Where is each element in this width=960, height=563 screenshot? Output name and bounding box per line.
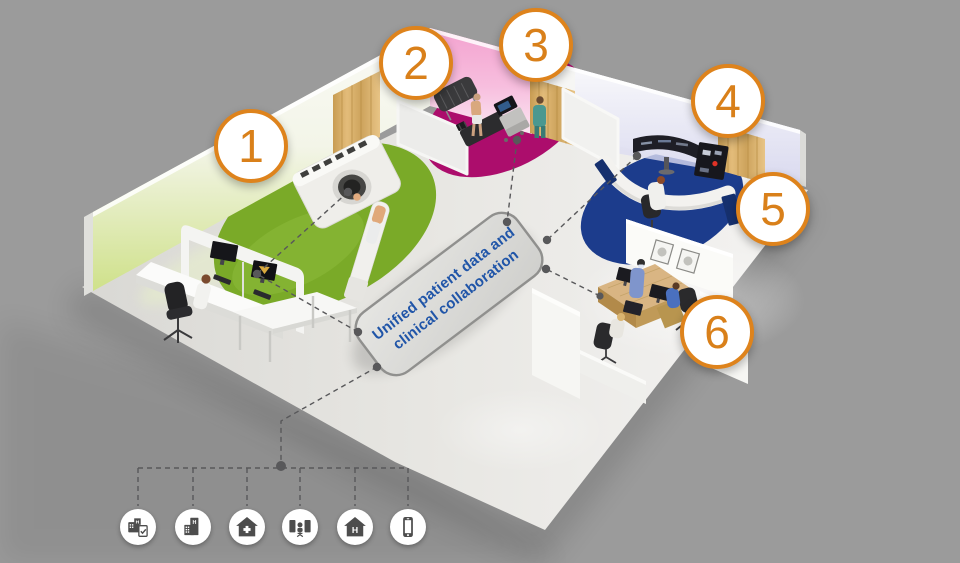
reading-room-glyph (287, 514, 313, 540)
marker-3[interactable]: 3 (499, 8, 573, 82)
hospital-floorplan-diagram: Unified patient data and clinical collab… (0, 0, 960, 563)
marker-6[interactable]: 6 (680, 295, 754, 369)
reading-room-icon[interactable] (282, 509, 318, 545)
home-hospital-icon[interactable]: H (337, 509, 373, 545)
mobile-phone-icon[interactable] (390, 509, 426, 545)
home-care-icon[interactable] (229, 509, 265, 545)
marker-3-label: 3 (523, 22, 549, 68)
marker-4[interactable]: 4 (691, 64, 765, 138)
marker-1-label: 1 (238, 123, 264, 169)
marker-1[interactable]: 1 (214, 109, 288, 183)
hospital-building-glyph: H (180, 514, 206, 540)
control-monitor-panel (694, 142, 729, 180)
home-hospital-glyph: H (342, 514, 368, 540)
marker-6-label: 6 (704, 309, 730, 355)
svg-text:H: H (192, 520, 196, 526)
svg-text:H: H (136, 520, 140, 526)
marker-2-label: 2 (403, 40, 429, 86)
marker-5-label: 5 (760, 186, 786, 232)
hospital-report-icon[interactable]: H (120, 509, 156, 545)
home-care-glyph (234, 514, 260, 540)
hospital-building-icon[interactable]: H (175, 509, 211, 545)
marker-5[interactable]: 5 (736, 172, 810, 246)
svg-text:H: H (352, 525, 358, 535)
marker-4-label: 4 (715, 78, 741, 124)
hospital-report-glyph: H (125, 514, 151, 540)
marker-2[interactable]: 2 (379, 26, 453, 100)
mobile-phone-glyph (395, 514, 421, 540)
